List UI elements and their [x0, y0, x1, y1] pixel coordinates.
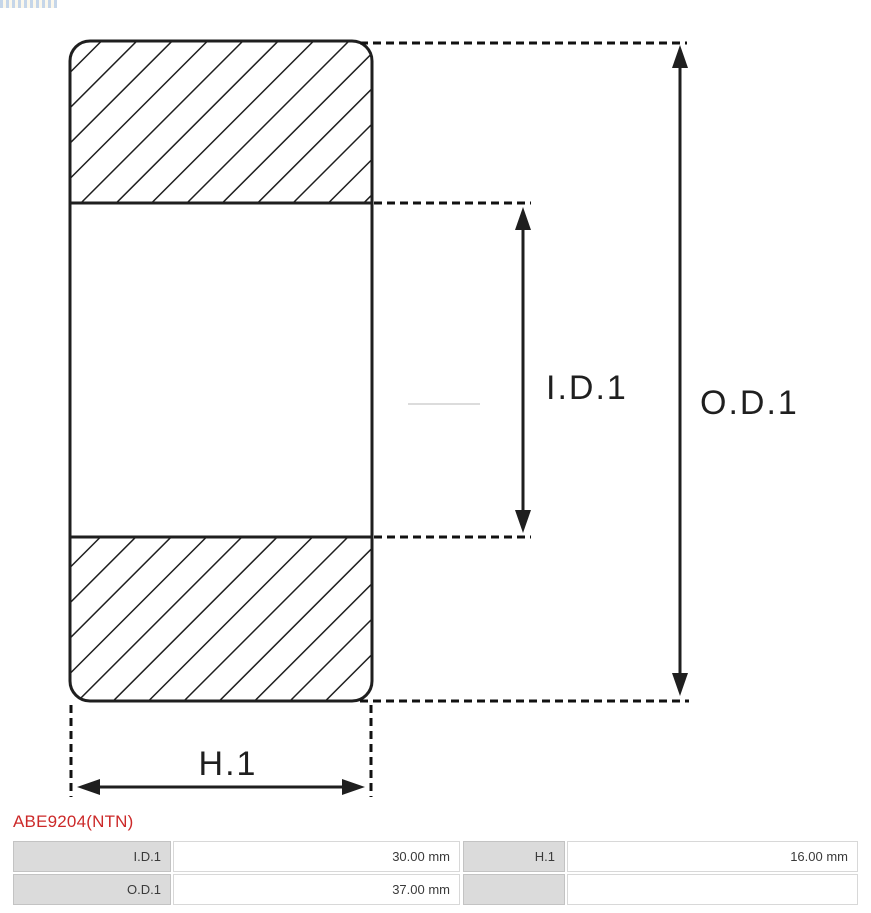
spec-value-od: 37.00 mm: [173, 874, 460, 905]
outer-race-hatch-top: [70, 41, 372, 203]
spec-label-id: I.D.1: [13, 841, 171, 872]
bearing-diagram: I.D.1 O.D.1 H.1: [0, 0, 871, 810]
spec-label-od: O.D.1: [13, 874, 171, 905]
id-dimension-label: I.D.1: [546, 369, 628, 407]
spec-value-h: 16.00 mm: [567, 841, 858, 872]
outer-race-hatch-bottom: [70, 537, 372, 701]
od-dimension-arrow: [672, 45, 688, 696]
part-number: ABE9204(NTN): [13, 812, 134, 832]
spec-table-row: O.D.1 37.00 mm: [13, 874, 858, 905]
h-dimension-label: H.1: [199, 745, 258, 783]
spec-value-empty: [567, 874, 858, 905]
spec-value-id: 30.00 mm: [173, 841, 460, 872]
id-dimension-arrow: [515, 207, 531, 533]
bearing-body: [70, 41, 480, 701]
od-dimension-label: O.D.1: [700, 384, 799, 422]
spec-table-row: I.D.1 30.00 mm H.1 16.00 mm: [13, 841, 858, 872]
spec-label-h: H.1: [463, 841, 565, 872]
spec-label-empty: [463, 874, 565, 905]
